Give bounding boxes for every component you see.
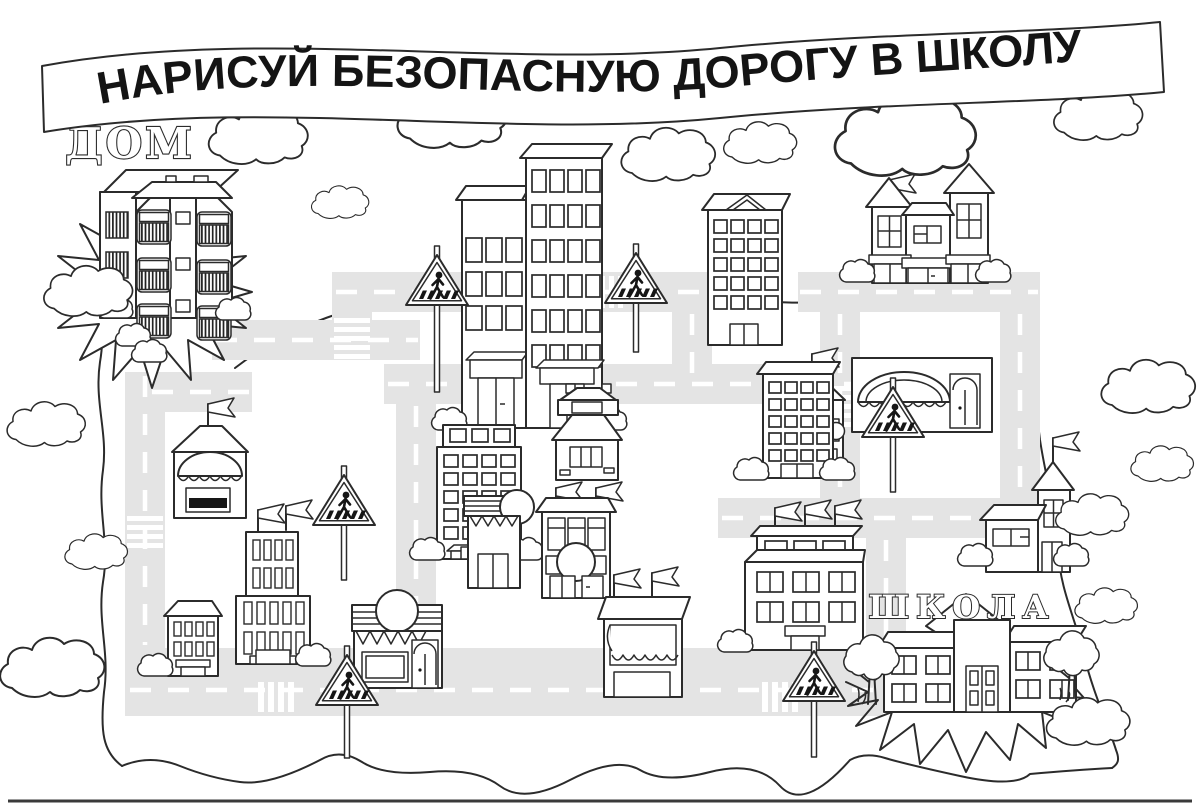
cafe-awning: [598, 567, 690, 697]
flag-icon: [258, 504, 285, 534]
office-tower-small: [456, 186, 530, 428]
cloud-icon: [7, 402, 85, 446]
pedestrian-crossing-sign-icon: [605, 244, 667, 352]
flag-icon: [286, 500, 313, 530]
title-banner: НАРИСУЙ БЕЗОПАСНУЮ ДОРОГУ В ШКОЛУ: [42, 20, 1164, 132]
cloud-icon: [724, 122, 797, 163]
bush-icon: [216, 298, 251, 320]
cloud-icon: [44, 266, 133, 316]
school-label: ШКОЛА: [869, 588, 1056, 626]
flag-icon: [208, 398, 235, 428]
cloud-icon: [0, 638, 104, 697]
cottage: [552, 384, 622, 480]
cloud-icon: [65, 534, 128, 570]
cloud-icon: [621, 128, 715, 181]
pedestrian-crossing-sign-icon: [313, 466, 375, 580]
shop-round-sign: [352, 590, 442, 688]
ice-cream-kiosk: [172, 398, 248, 518]
worksheet-page: ДОМ: [0, 0, 1200, 808]
cloud-icon: [1101, 360, 1195, 413]
flag-icon: [652, 567, 679, 597]
flag-icon: [1053, 432, 1080, 462]
flag-icon: [614, 569, 641, 599]
tram-kiosk: [536, 482, 623, 598]
cloud-icon: [1075, 588, 1138, 624]
border-ground-wave: [122, 754, 1112, 794]
cloud-icon: [311, 186, 368, 219]
gable-roof-tower: [702, 194, 790, 345]
kindergarten-castle: [840, 164, 1011, 283]
cloud-icon: [1131, 446, 1194, 482]
